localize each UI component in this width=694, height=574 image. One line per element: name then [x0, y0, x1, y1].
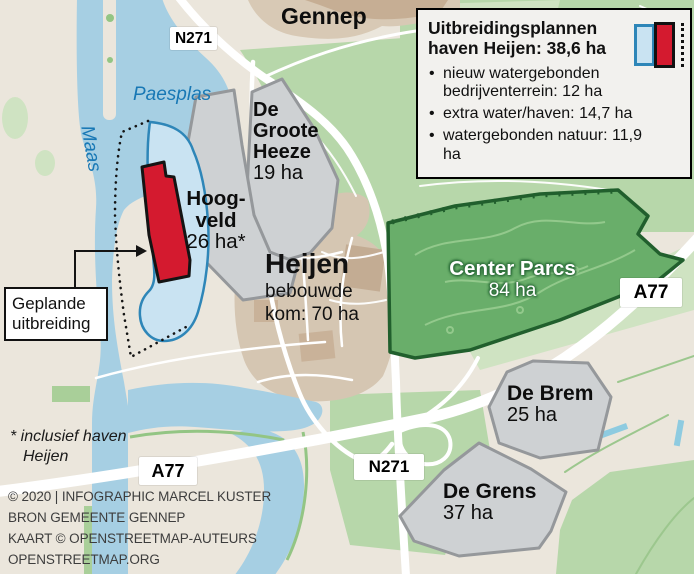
- area-label-center-parcs: Center Parcs 84 ha: [440, 258, 585, 301]
- water-label-paesplas: Paesplas: [133, 84, 211, 106]
- heijen-detail: bebouwde kom: 70 ha: [265, 281, 370, 327]
- road-sign-n271-south: N271: [354, 454, 424, 480]
- legend-box: Uitbreidingsplannen haven Heijen: 38,6 h…: [416, 8, 692, 179]
- new-terrain-swatch-icon: [654, 22, 675, 68]
- area-label-hoogveld: Hoog-veld 26 ha*: [176, 188, 256, 253]
- road-sign-n271-top: N271: [170, 27, 217, 50]
- city-label-gennep: Gennep: [281, 3, 367, 30]
- credits-block: © 2020 | INFOGRAPHIC MARCEL KUSTER BRON …: [8, 490, 271, 574]
- credit-line: OPENSTREETMAP.ORG: [8, 553, 271, 567]
- legend-item-extra-water: extra water/haven: 14,7 ha: [428, 105, 643, 124]
- legend-items: nieuw watergebonden bedrijventerrein: 12…: [428, 65, 680, 165]
- legend-swatch-icon: [634, 22, 684, 68]
- extra-water-swatch-icon: [634, 24, 655, 66]
- area-label-heijen: Heijen bebouwde kom: 70 ha: [265, 250, 370, 327]
- nature-dotted-swatch-icon: [678, 23, 684, 67]
- credit-line: © 2020 | INFOGRAPHIC MARCEL KUSTER: [8, 490, 271, 504]
- heijen-name: Heijen: [265, 250, 370, 278]
- legend-title: Uitbreidingsplannen haven Heijen: 38,6 h…: [428, 18, 618, 59]
- footnote-incl-haven: * inclusief haven Heijen: [10, 427, 141, 467]
- area-label-groote-heeze: De Groote Heeze 19 ha: [253, 100, 335, 184]
- legend-item-new-terrain: nieuw watergebonden bedrijventerrein: 12…: [428, 65, 643, 103]
- planned-expansion-callout: Geplande uitbreiding: [4, 287, 108, 341]
- infographic-map-heijen: Gennep Paesplas Maas De Groote Heeze 19 …: [0, 0, 694, 574]
- credit-line: BRON GEMEENTE GENNEP: [8, 511, 271, 525]
- road-sign-a77-southwest: A77: [139, 457, 197, 485]
- area-label-de-grens: De Grens 37 ha: [443, 481, 536, 524]
- road-sign-a77-right: A77: [620, 278, 682, 307]
- area-label-de-brem: De Brem 25 ha: [507, 383, 593, 426]
- legend-item-nature: watergebonden natuur: 11,9 ha: [428, 127, 643, 165]
- credit-line: KAART © OPENSTREETMAP-AUTEURS: [8, 532, 271, 546]
